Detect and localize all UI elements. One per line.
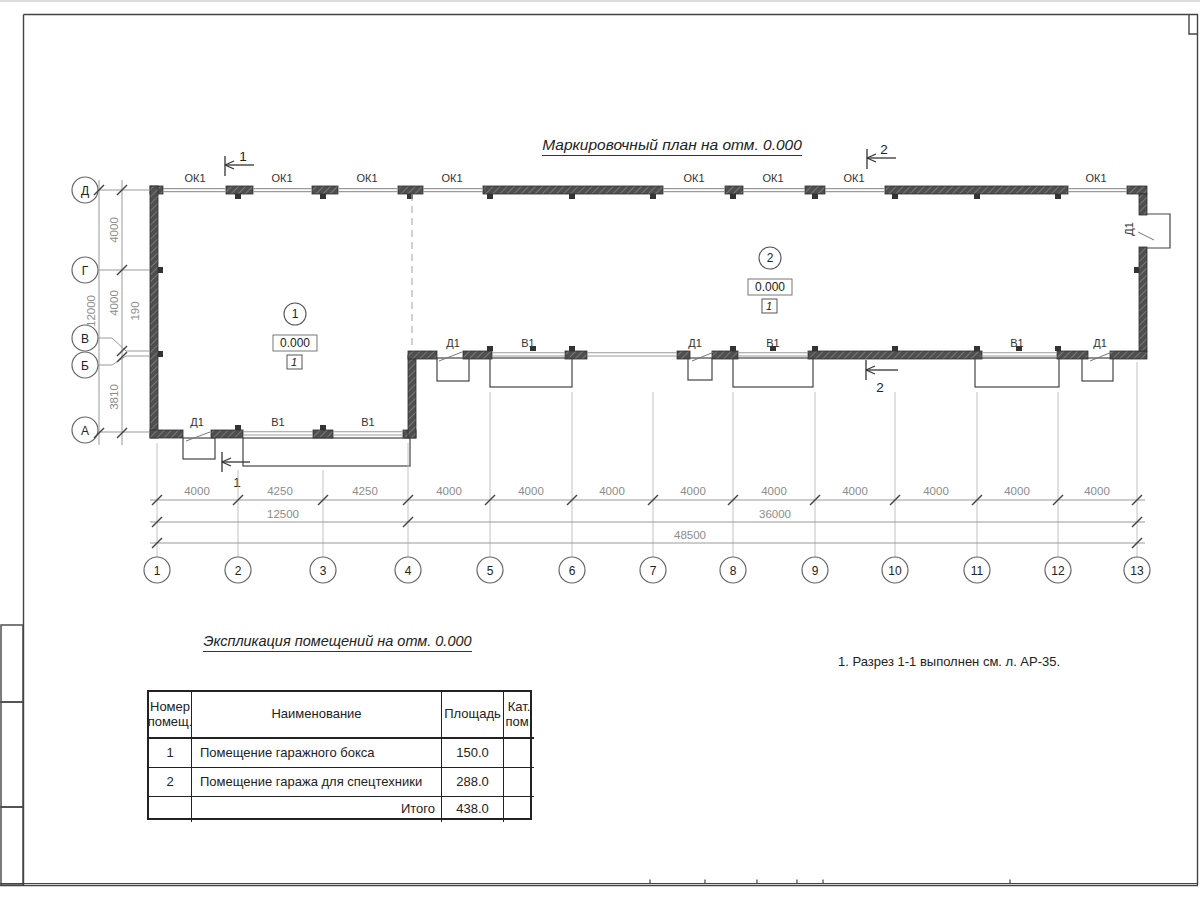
dim-label: 4000	[761, 485, 787, 497]
axis-letter: Д	[81, 184, 89, 198]
door-label: Д1	[688, 337, 702, 349]
cell-room-name: Помещение гаража для спецтехники	[192, 768, 442, 797]
col-header: Наименование	[192, 692, 442, 739]
axis-number: 12	[1051, 564, 1065, 578]
axis-letter: В	[81, 332, 89, 346]
axis-number: 5	[487, 564, 494, 578]
axis-number: 2	[235, 564, 242, 578]
dim-label: 4000	[108, 290, 120, 316]
axis-numbers: 1 2 3 4 5 6 7 8 9 10 11 12 13	[144, 557, 1150, 583]
floor-type: 1	[291, 356, 297, 368]
dim-label: 4000	[108, 217, 120, 243]
room-elevation: 0.000	[755, 280, 785, 294]
sheet-number-box	[1189, 15, 1198, 35]
axis-number: 7	[650, 564, 657, 578]
section-mark-2-bottom: 2	[866, 360, 898, 395]
cell-room-number: 2	[149, 768, 192, 797]
door-label: Д1	[446, 337, 460, 349]
room-tag-1: 1 0.000 1	[273, 303, 317, 369]
door-label: Д1	[1093, 337, 1107, 349]
cell-empty	[149, 797, 192, 822]
section-label: 1	[239, 149, 247, 164]
section-label: 1	[233, 475, 241, 490]
gate-label: В1	[521, 337, 534, 349]
cell-total-label: Итого	[192, 797, 442, 822]
axis-number: 3	[320, 564, 327, 578]
door-label: Д1	[190, 416, 204, 428]
section-mark-2-top: 2	[867, 142, 896, 169]
dim-label: 4000	[680, 485, 706, 497]
note-text: 1. Разрез 1-1 выполнен см. л. АР-35.	[838, 654, 1060, 669]
axis-number: 13	[1130, 564, 1144, 578]
room-tag-2: 2 0.000 1	[748, 247, 792, 313]
room-schedule-table: Номер помещ. Наименование Площадь Кат. п…	[147, 690, 532, 820]
dim-label: 4250	[352, 485, 378, 497]
dim-total-label: 12000	[85, 295, 97, 327]
window-label: ОК1	[683, 172, 704, 184]
room-number: 2	[767, 251, 774, 265]
window-label: ОК1	[356, 172, 377, 184]
dims-bottom: 4000 4250 4250 4000 4000 4000 4000 4000 …	[150, 485, 1145, 548]
dim-label: 190	[129, 301, 141, 320]
axis-number: 6	[569, 564, 576, 578]
axis-letter: Б	[81, 359, 89, 373]
axis-number: 10	[888, 564, 902, 578]
room-elevation: 0.000	[280, 336, 310, 350]
dim-label: 4000	[1084, 485, 1110, 497]
cell-room-area: 150.0	[442, 739, 504, 768]
dim-label: 4000	[184, 485, 210, 497]
gate-label: В1	[361, 416, 374, 428]
dim-total-label: 12500	[267, 508, 299, 520]
window-labels: ОК1 ОК1 ОК1 ОК1 ОК1 ОК1 ОК1 ОК1	[184, 172, 1106, 184]
section-mark-1-top: 1	[225, 149, 254, 176]
section-mark-1-bottom: 1	[222, 452, 250, 490]
cell-room-area: 288.0	[442, 768, 504, 797]
left-stamp-boxes	[1, 625, 23, 885]
door-swings	[186, 232, 1154, 441]
dim-total-label: 48500	[674, 529, 706, 541]
col-header: Номер помещ.	[149, 692, 192, 739]
section-label: 2	[880, 142, 888, 157]
axis-number: 4	[405, 564, 412, 578]
drawing-sheet: ОК1 ОК1 ОК1 ОК1 ОК1 ОК1 ОК1 ОК1 Д1 В1 В1…	[0, 0, 1200, 900]
dim-label: 4000	[923, 485, 949, 497]
cell-room-category	[504, 768, 534, 797]
extension-lines	[157, 362, 1137, 557]
axis-letter: Г	[82, 264, 89, 278]
window-label: ОК1	[1085, 172, 1106, 184]
drawing-title: Маркировочный план на отм. 0.000	[542, 136, 802, 154]
cell-total-area: 438.0	[442, 797, 504, 822]
section-label: 2	[876, 380, 884, 395]
axis-number: 8	[730, 564, 737, 578]
dim-label: 4250	[267, 485, 293, 497]
dim-label: 3810	[108, 384, 120, 410]
schedule-title: Экспликация помещений на отм. 0.000	[190, 633, 485, 649]
gate-label: В1	[271, 416, 284, 428]
gate-label: В1	[1010, 337, 1023, 349]
cell-room-name: Помещение гаражного бокса	[192, 739, 442, 768]
window-label: ОК1	[271, 172, 292, 184]
dims-left: 4000 4000 190 3810 12000	[85, 180, 141, 445]
window-label: ОК1	[184, 172, 205, 184]
cell-empty	[504, 797, 534, 822]
axis-letter-leaders	[98, 190, 150, 432]
axis-number: 9	[812, 564, 819, 578]
dim-label: 4000	[599, 485, 625, 497]
axis-number: 1	[154, 564, 161, 578]
dim-label: 4000	[518, 485, 544, 497]
col-header: Кат. пом.	[504, 692, 534, 739]
dim-label: 4000	[436, 485, 462, 497]
floor-type: 1	[766, 300, 772, 312]
window-label: ОК1	[762, 172, 783, 184]
dim-total-label: 36000	[759, 508, 791, 520]
cell-room-number: 1	[149, 739, 192, 768]
window-openings	[163, 189, 1127, 435]
window-label: ОК1	[441, 172, 462, 184]
cell-room-category	[504, 739, 534, 768]
window-label: ОК1	[843, 172, 864, 184]
col-header: Площадь	[442, 692, 504, 739]
room-number: 1	[292, 307, 299, 321]
door-gate-labels: Д1 В1 В1 Д1 В1 Д1 В1 В1 Д1 Д1	[190, 222, 1135, 428]
door-label: Д1	[1123, 222, 1135, 236]
axis-letter: А	[81, 424, 89, 438]
dim-label: 4000	[1004, 485, 1030, 497]
axis-number: 11	[971, 564, 984, 578]
gate-label: В1	[766, 337, 779, 349]
dim-label: 4000	[842, 485, 868, 497]
